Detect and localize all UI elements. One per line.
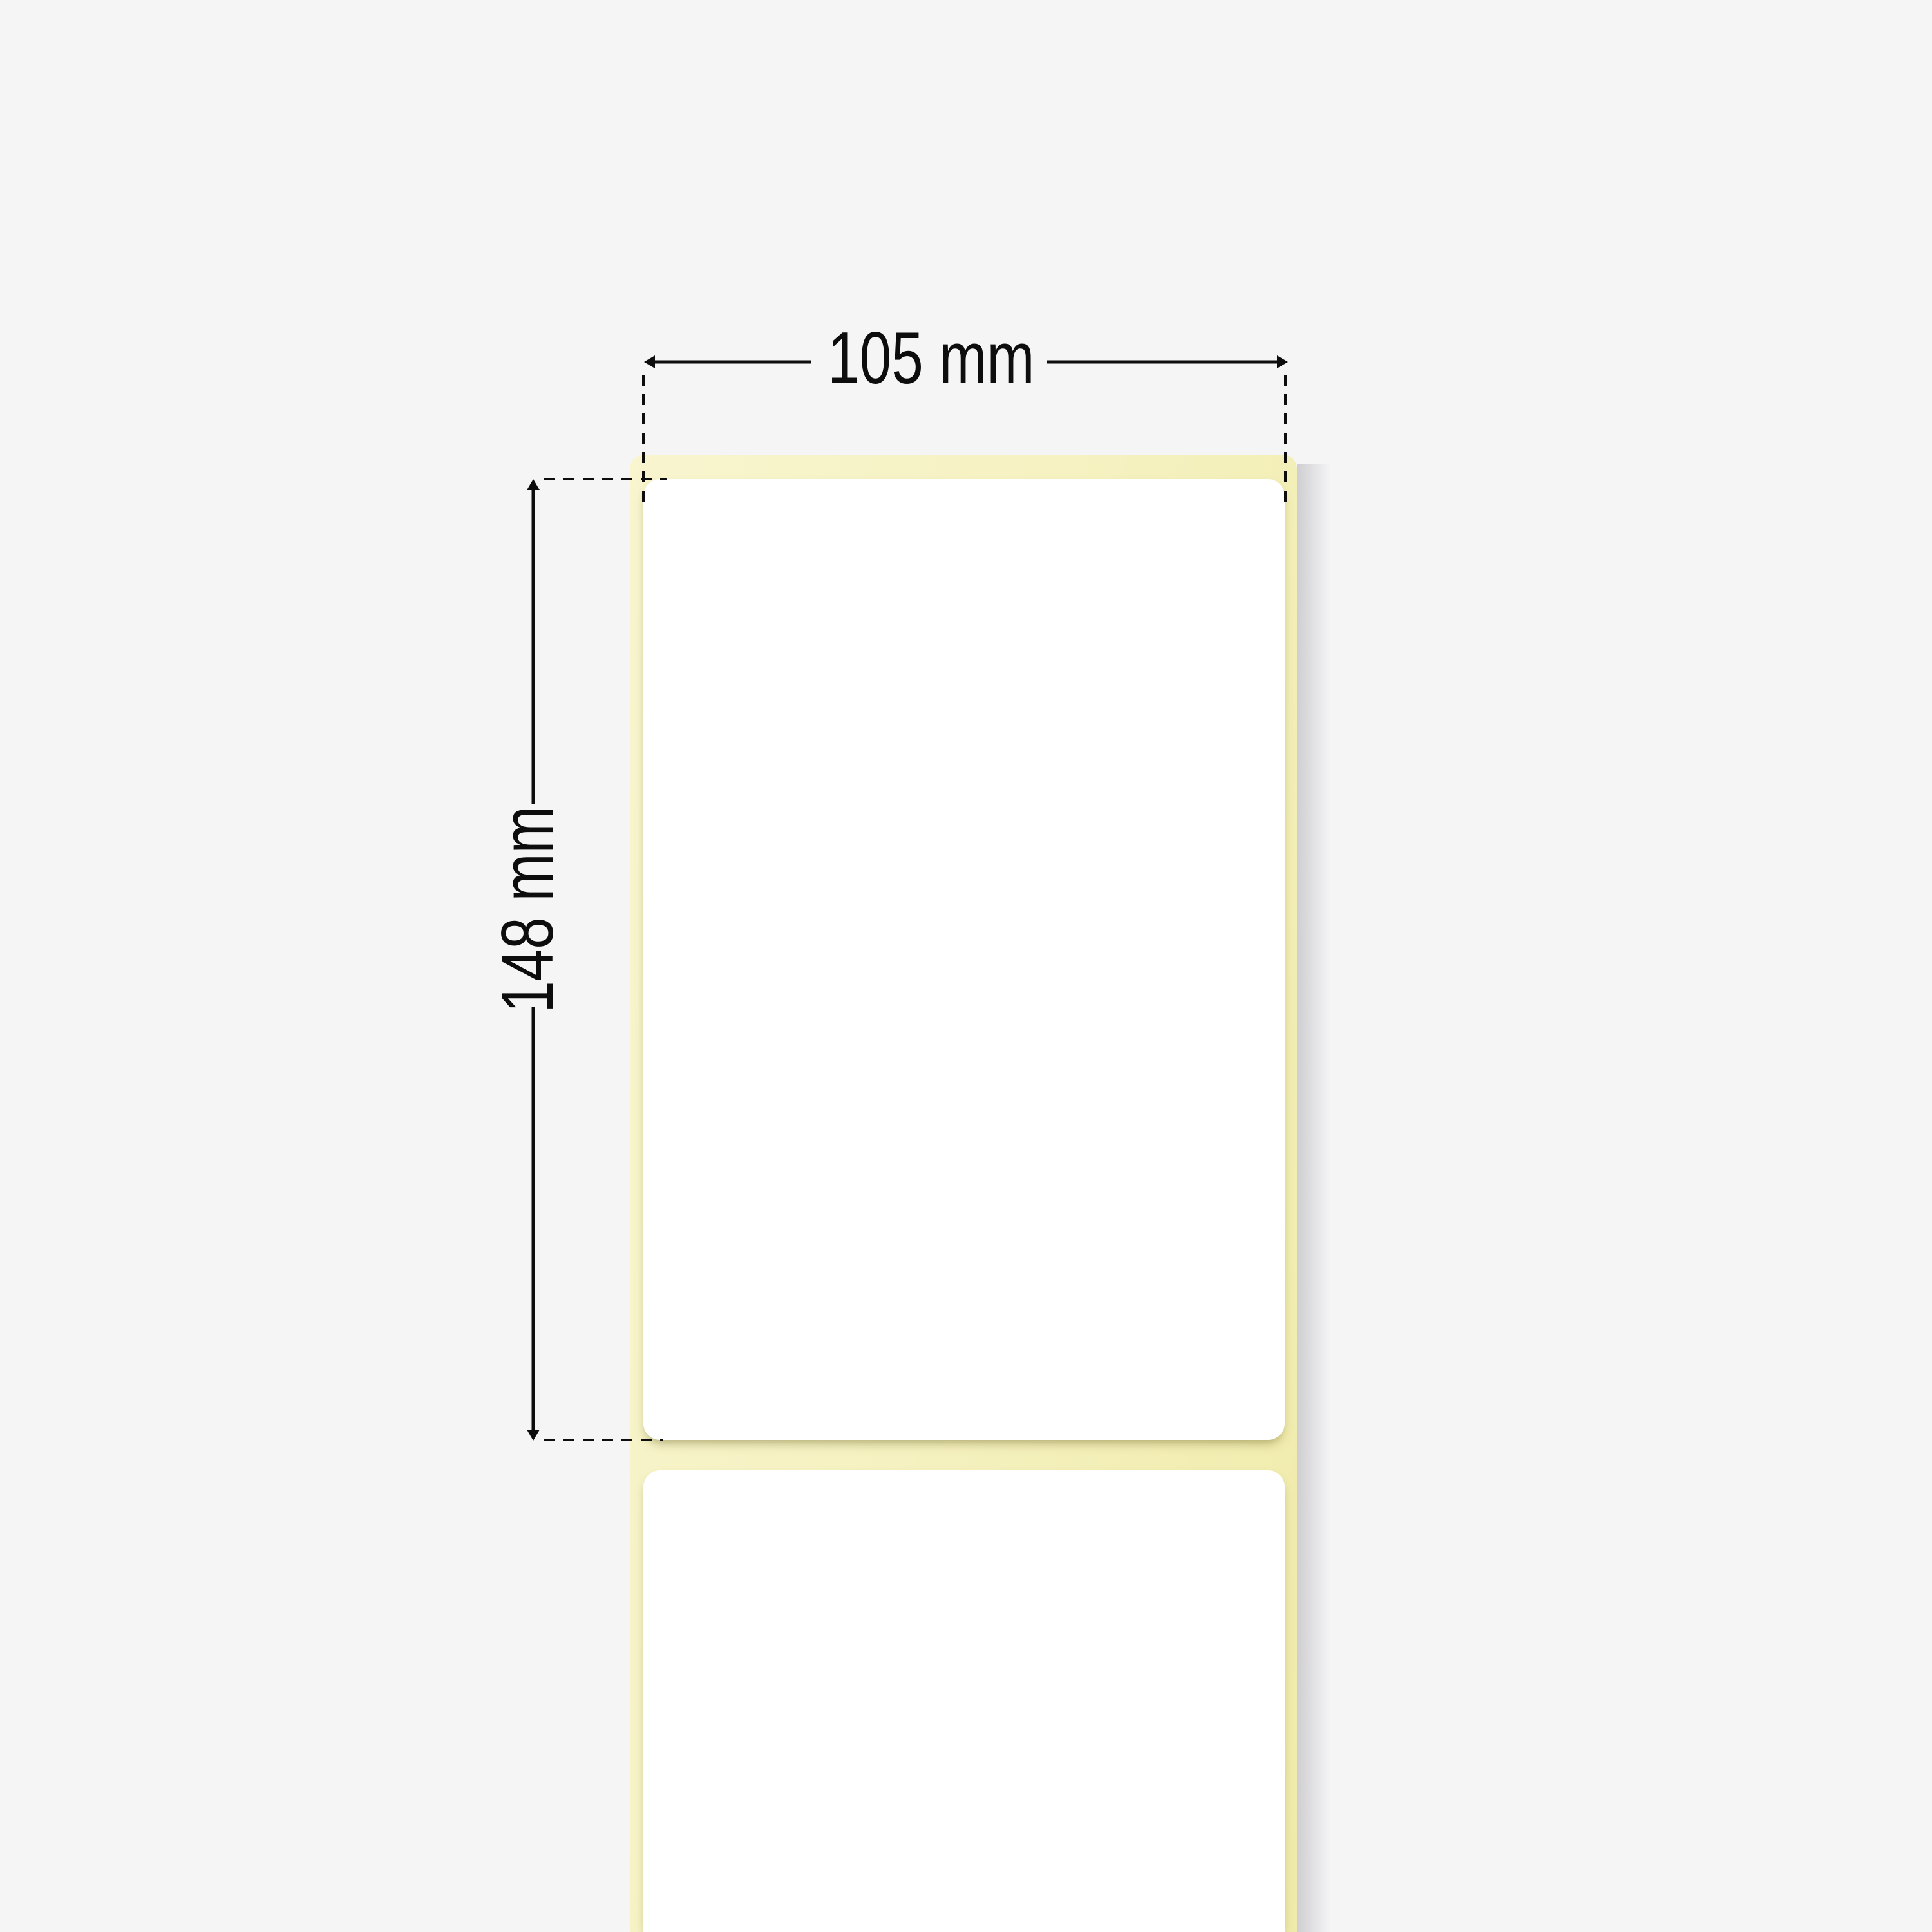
height-dimension-value: 148 mm bbox=[491, 806, 565, 1012]
width-dimension-value: 105 mm bbox=[828, 322, 1034, 395]
arrowhead-up-icon bbox=[527, 479, 540, 490]
arrowhead-left-icon bbox=[644, 355, 655, 368]
height-dimension-label: 148 mm bbox=[464, 804, 592, 1015]
dimension-annotations bbox=[0, 0, 1932, 1932]
label-roll-dimension-diagram: 105 mm 148 mm bbox=[0, 0, 1932, 1932]
arrowhead-down-icon bbox=[527, 1430, 540, 1441]
arrowhead-right-icon bbox=[1277, 355, 1288, 368]
width-dimension-label: 105 mm bbox=[738, 322, 1124, 395]
